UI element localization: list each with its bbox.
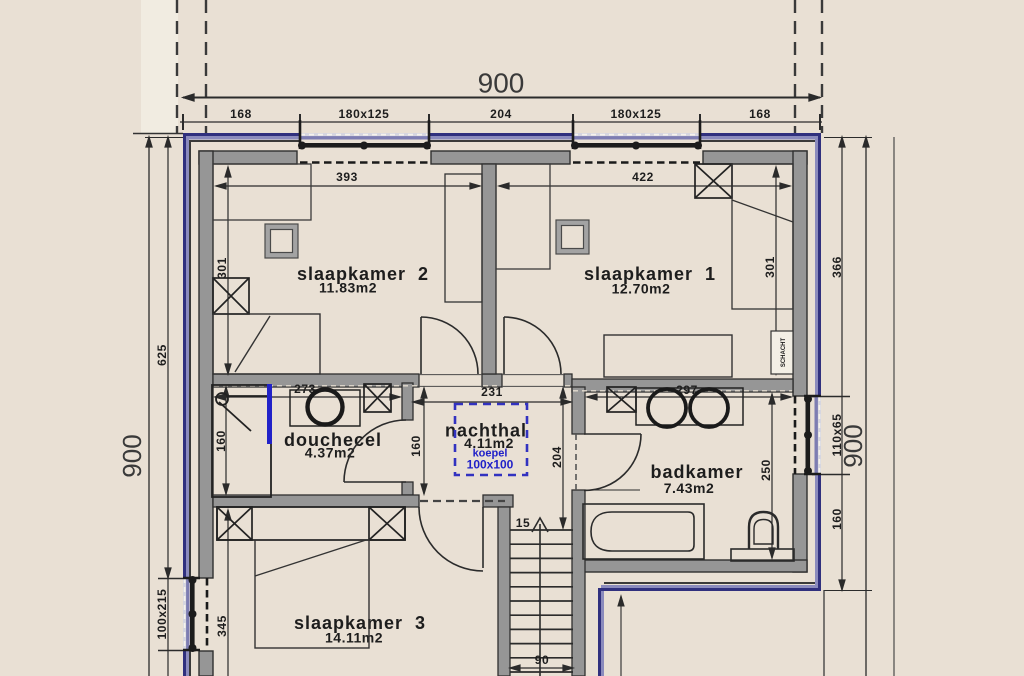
svg-text:160: 160	[214, 430, 228, 452]
svg-text:100x215: 100x215	[155, 589, 169, 640]
svg-text:160: 160	[830, 508, 844, 530]
svg-text:345: 345	[215, 615, 229, 637]
svg-text:90: 90	[535, 653, 550, 667]
svg-text:180x125: 180x125	[611, 107, 662, 121]
svg-text:250: 250	[759, 459, 773, 481]
svg-text:168: 168	[230, 107, 252, 121]
svg-text:168: 168	[749, 107, 771, 121]
svg-text:231: 231	[481, 385, 503, 399]
svg-text:301: 301	[215, 257, 229, 279]
svg-text:100x100: 100x100	[467, 458, 514, 472]
svg-text:204: 204	[490, 107, 512, 121]
svg-text:393: 393	[336, 170, 358, 184]
svg-text:900: 900	[478, 68, 525, 99]
svg-text:204: 204	[550, 446, 564, 468]
svg-text:15: 15	[516, 516, 531, 530]
svg-text:4.37m2: 4.37m2	[305, 445, 355, 461]
svg-text:301: 301	[763, 256, 777, 278]
svg-text:12.70m2: 12.70m2	[612, 281, 671, 297]
svg-text:11.83m2: 11.83m2	[319, 280, 377, 296]
svg-text:14.11m2: 14.11m2	[325, 630, 383, 646]
svg-text:366: 366	[830, 256, 844, 278]
svg-text:160: 160	[409, 435, 423, 457]
svg-text:422: 422	[632, 170, 654, 184]
svg-text:110x65: 110x65	[830, 414, 844, 457]
svg-text:900: 900	[117, 434, 147, 477]
svg-text:badkamer: badkamer	[650, 462, 743, 482]
svg-text:625: 625	[155, 344, 169, 366]
svg-text:SCHACHT: SCHACHT	[781, 338, 787, 368]
svg-text:7.43m2: 7.43m2	[664, 480, 714, 496]
svg-text:180x125: 180x125	[339, 107, 390, 121]
